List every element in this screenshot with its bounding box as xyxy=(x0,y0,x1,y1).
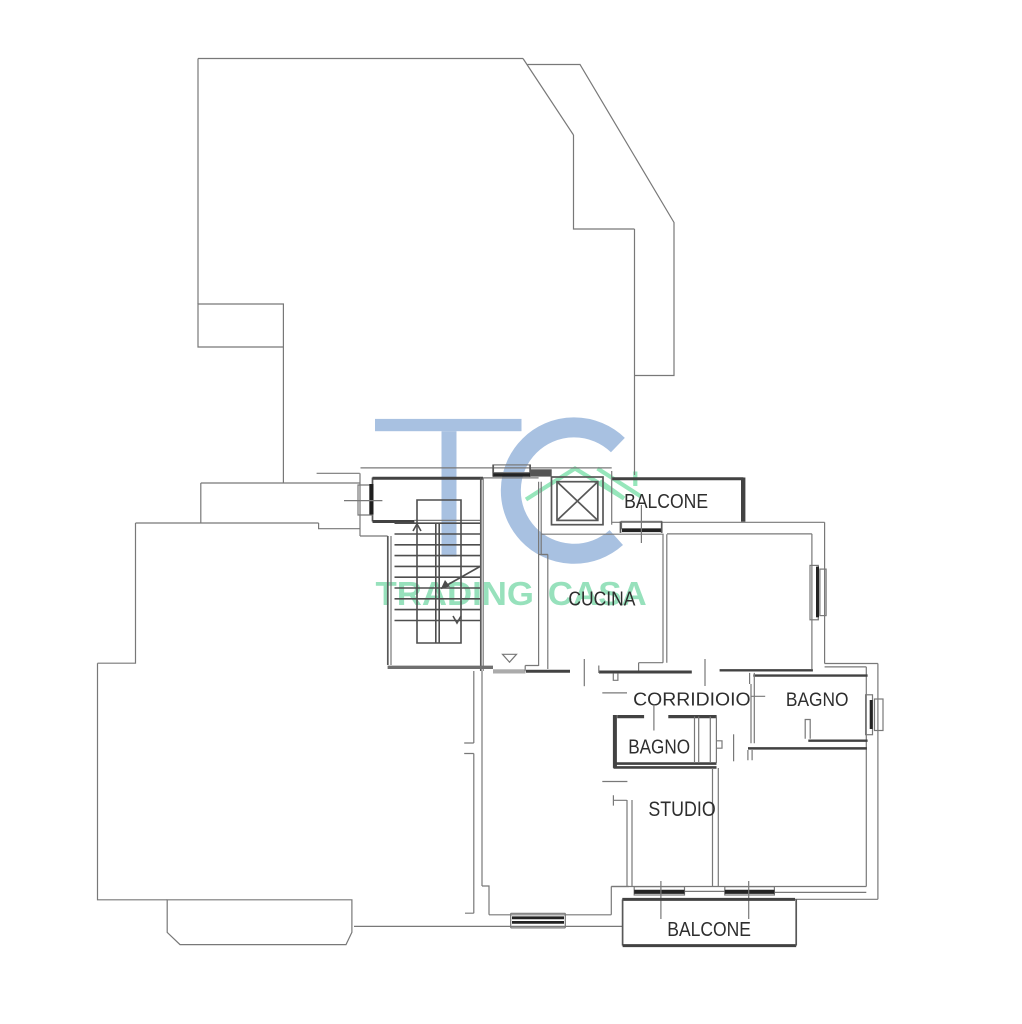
svg-text:STUDIO: STUDIO xyxy=(648,798,715,821)
svg-text:CORRIDIOIO: CORRIDIOIO xyxy=(633,690,751,710)
svg-text:BALCONE: BALCONE xyxy=(624,490,708,513)
svg-text:BAGNO: BAGNO xyxy=(786,689,849,711)
svg-text:CUCINA: CUCINA xyxy=(568,588,635,611)
svg-text:BALCONE: BALCONE xyxy=(667,919,751,941)
svg-text:BAGNO: BAGNO xyxy=(628,735,690,758)
svg-text:TRADING: TRADING xyxy=(376,576,535,613)
